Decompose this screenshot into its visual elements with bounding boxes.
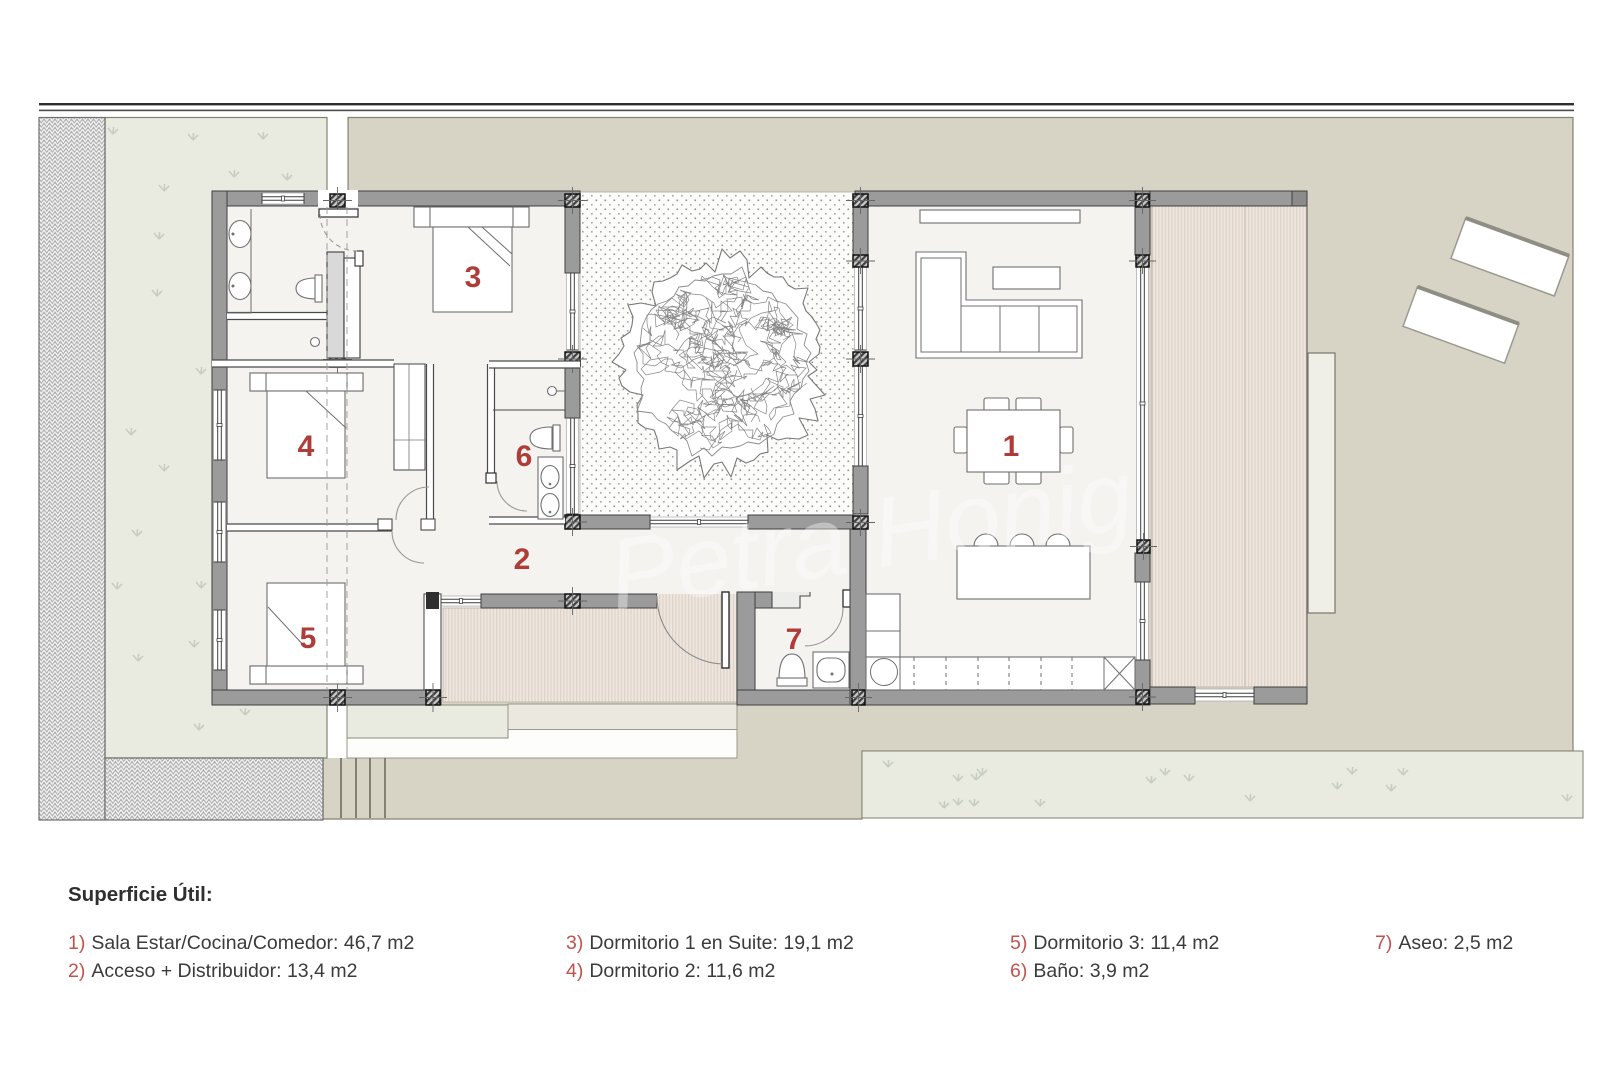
svg-text:3: 3 [465,261,482,294]
svg-text:5: 5 [300,622,317,655]
svg-text:1)Sala Estar/Cocina/Comedor: 4: 1)Sala Estar/Cocina/Comedor: 46,7 m2 [68,932,414,954]
svg-text:2: 2 [514,543,531,576]
svg-text:6: 6 [516,440,533,473]
svg-text:2)Acceso + Distribuidor: 13,4: 2)Acceso + Distribuidor: 13,4 m2 [68,960,357,982]
svg-text:3)Dormitorio 1 en Suite: 19,1: 3)Dormitorio 1 en Suite: 19,1 m2 [566,932,854,954]
svg-text:4)Dormitorio 2: 11,6 m2: 4)Dormitorio 2: 11,6 m2 [566,960,775,982]
svg-text:7: 7 [786,623,803,656]
svg-text:4: 4 [298,430,315,463]
svg-text:Superficie Útil:: Superficie Útil: [68,882,213,906]
svg-text:5)Dormitorio 3: 11,4 m2: 5)Dormitorio 3: 11,4 m2 [1010,932,1219,954]
